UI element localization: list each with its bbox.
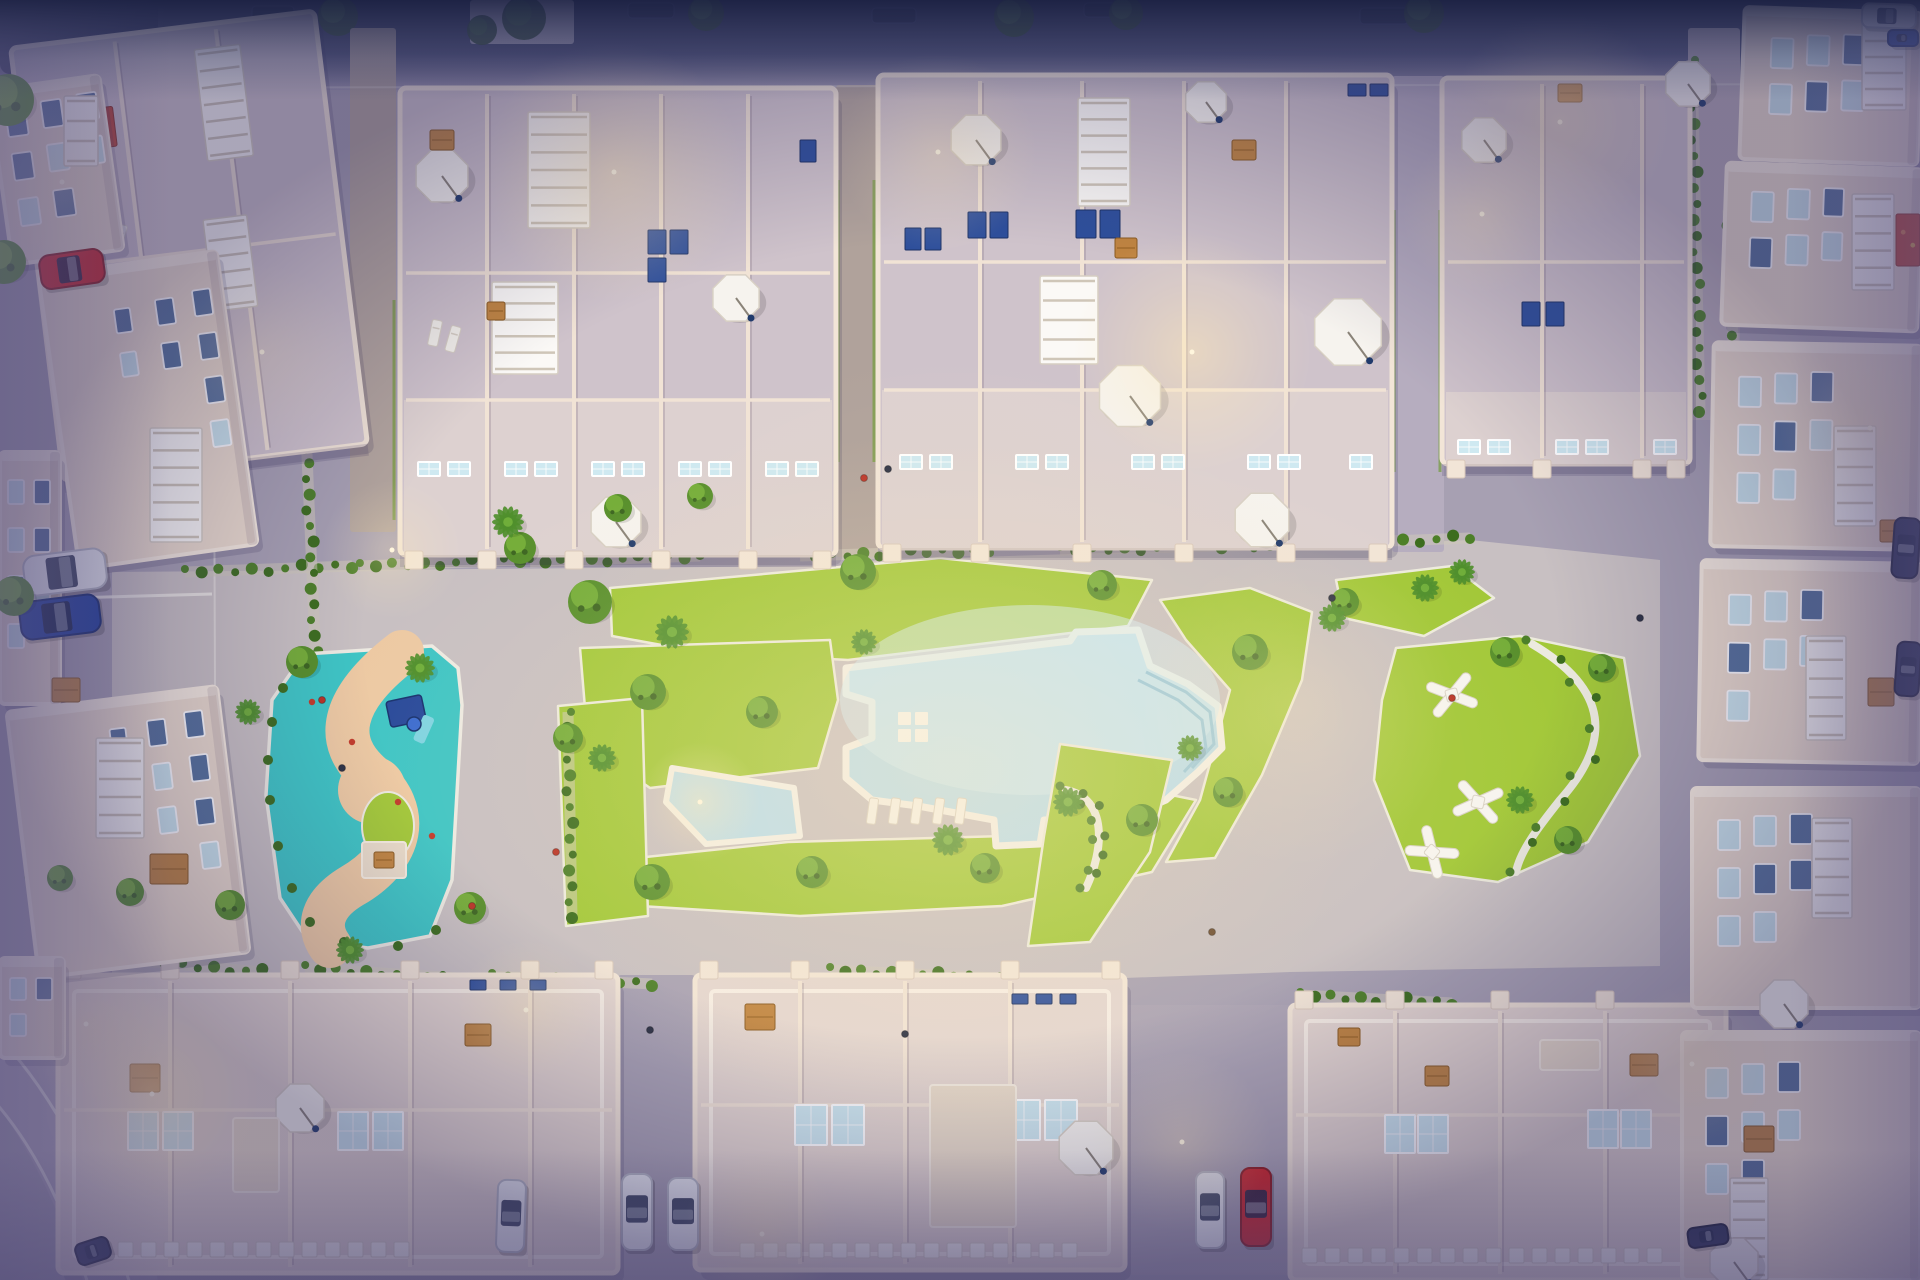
dusk-vignette [0, 0, 1920, 1280]
aerial-architectural-render [0, 0, 1920, 1280]
scene-svg [0, 0, 1920, 1280]
